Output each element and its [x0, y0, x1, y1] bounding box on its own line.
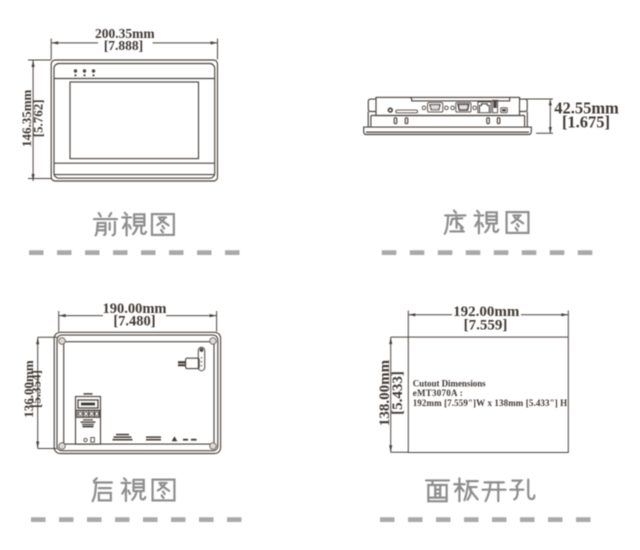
svg-text:[5.762]: [5.762]	[30, 99, 45, 137]
svg-text:eMT3070A :: eMT3070A :	[413, 388, 463, 398]
svg-text:[7.480]: [7.480]	[113, 314, 155, 330]
svg-text:192mm [7.559"]W x 138mm [5.433: 192mm [7.559"]W x 138mm [5.433"] H	[413, 398, 568, 408]
svg-text:[5.433]: [5.433]	[390, 371, 406, 415]
svg-text:[7.888]: [7.888]	[104, 38, 143, 53]
svg-text:[7.559]: [7.559]	[464, 318, 508, 334]
svg-text:[5.354]: [5.354]	[28, 370, 43, 408]
svg-text:[1.675]: [1.675]	[562, 112, 610, 131]
